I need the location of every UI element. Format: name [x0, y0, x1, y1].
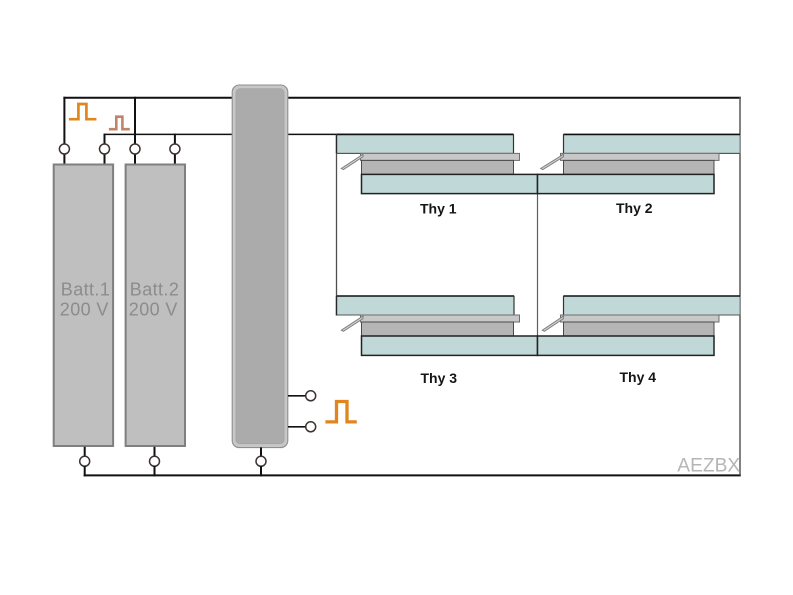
- svg-text:200 V: 200 V: [129, 299, 178, 319]
- svg-text:Batt.2: Batt.2: [130, 279, 179, 299]
- svg-text:Thy 2: Thy 2: [616, 200, 653, 216]
- svg-text:AEZBX: AEZBX: [677, 456, 740, 477]
- svg-text:Thy 3: Thy 3: [421, 370, 458, 386]
- svg-text:Thy 4: Thy 4: [620, 369, 657, 385]
- svg-text:Batt.1: Batt.1: [61, 279, 110, 299]
- svg-text:Thy 1: Thy 1: [420, 201, 457, 217]
- svg-text:200 V: 200 V: [60, 299, 109, 319]
